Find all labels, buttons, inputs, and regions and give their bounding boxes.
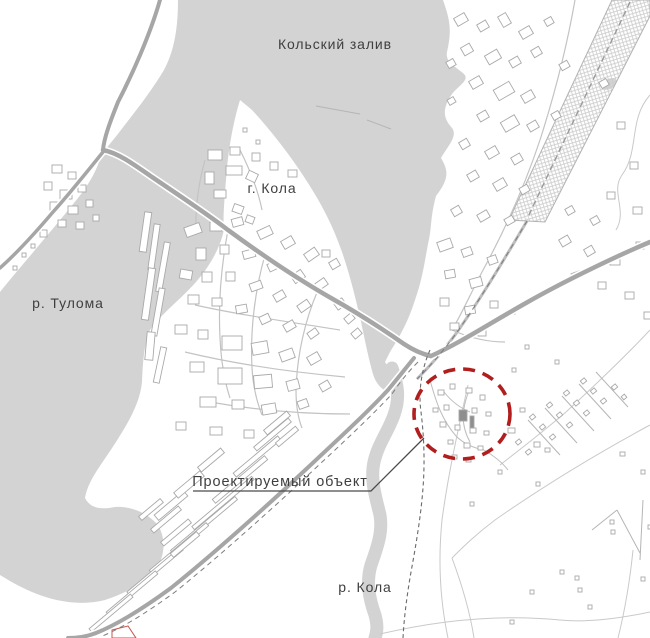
building-footprint	[641, 577, 645, 581]
building-footprint	[531, 46, 543, 57]
building-footprint	[438, 390, 444, 395]
building-footprint	[559, 235, 572, 247]
building-footprint	[487, 255, 498, 266]
street	[252, 255, 265, 415]
building-footprint	[58, 220, 66, 227]
building-footprint	[534, 442, 540, 447]
building-footprint	[510, 620, 514, 624]
railway	[417, 0, 650, 379]
building-footprint	[176, 422, 186, 430]
building-footprint	[544, 16, 554, 26]
building-footprint	[153, 347, 166, 383]
building-footprint	[444, 405, 449, 410]
building-footprint	[478, 446, 483, 450]
building-footprint	[484, 49, 501, 65]
building-footprint	[351, 328, 362, 339]
building-footprint	[621, 394, 627, 400]
building-footprint	[319, 380, 332, 392]
building-footprint	[498, 470, 502, 474]
building-footprint	[273, 290, 287, 302]
building-footprint	[620, 452, 625, 456]
building-footprint	[232, 400, 244, 409]
building-footprint	[454, 13, 469, 27]
building-footprint	[607, 192, 615, 199]
building-footprint	[190, 362, 204, 372]
building-footprint	[598, 282, 606, 289]
building-footprint	[188, 295, 199, 304]
building-footprint	[485, 146, 500, 160]
building-footprint	[259, 313, 271, 324]
building-footprint	[633, 207, 642, 214]
building-footprint	[68, 172, 76, 179]
building-footprint	[286, 379, 300, 392]
building-footprint	[500, 115, 519, 133]
building-footprint	[555, 360, 559, 364]
building-footprint	[76, 222, 84, 229]
trail	[618, 550, 633, 638]
building-footprint	[205, 172, 214, 184]
building-footprint	[560, 570, 564, 574]
building-footprint	[625, 292, 634, 299]
building-footprint	[437, 238, 454, 252]
building-footprint	[279, 348, 296, 362]
building-footprint	[469, 277, 483, 289]
building-footprint	[527, 120, 540, 132]
building-footprint	[288, 170, 297, 177]
building-footprint	[588, 605, 592, 609]
building-footprint	[611, 530, 615, 534]
building-footprint	[68, 206, 78, 214]
site-location-map: Кольский залив р. Тулома г. Кола р. Кола…	[0, 0, 650, 638]
building-footprint	[512, 368, 516, 372]
building-footprint	[521, 90, 536, 104]
building-footprint	[198, 330, 208, 339]
building-footprint	[93, 215, 99, 221]
label-kola-bay: Кольский залив	[278, 36, 392, 52]
building-footprint	[563, 390, 569, 396]
building-footprint	[450, 323, 459, 330]
building-footprint	[22, 253, 26, 257]
building-footprint	[459, 410, 467, 421]
building-footprint	[600, 398, 606, 404]
building-footprint	[520, 408, 525, 412]
building-footprint	[498, 13, 512, 28]
building-footprint	[467, 170, 480, 182]
label-project-object: Проектируемый объект	[192, 474, 368, 490]
building-footprint	[610, 520, 614, 524]
building-footprint	[480, 395, 485, 400]
building-footprint	[444, 269, 455, 279]
building-footprint	[244, 430, 254, 438]
street	[210, 402, 350, 414]
building-footprint	[477, 20, 490, 32]
building-footprint	[461, 247, 473, 258]
boundary-dash	[403, 350, 430, 638]
building-footprint	[440, 298, 449, 306]
building-footprint	[230, 147, 240, 155]
building-footprint	[440, 422, 446, 427]
building-footprint	[175, 325, 187, 334]
building-footprint	[617, 122, 625, 129]
building-footprint	[253, 374, 272, 389]
building-footprint	[630, 162, 638, 169]
building-footprint	[509, 56, 522, 68]
building-footprint	[210, 427, 222, 435]
building-footprint	[245, 215, 255, 224]
building-footprint	[525, 449, 531, 455]
building-footprint	[515, 439, 521, 445]
building-footprint	[477, 110, 490, 122]
building-footprint	[13, 266, 17, 270]
building-footprint	[226, 272, 235, 281]
building-footprint	[470, 502, 474, 506]
building-footprint	[256, 140, 260, 144]
building-footprint	[493, 178, 508, 192]
building-footprint	[464, 443, 470, 448]
building-footprint	[472, 408, 477, 413]
label-kola-river: р. Кола	[338, 579, 391, 595]
building-footprint	[322, 250, 330, 257]
building-footprint	[490, 301, 498, 308]
building-footprint	[556, 412, 562, 418]
building-footprint	[329, 258, 341, 269]
building-footprint	[545, 448, 550, 452]
building-footprint	[235, 304, 247, 314]
building-footprint	[307, 328, 319, 339]
building-footprint	[304, 247, 320, 262]
building-footprint	[493, 81, 515, 100]
building-footprint	[31, 244, 35, 248]
building-footprint	[270, 162, 278, 170]
building-footprint	[644, 312, 650, 319]
building-footprint	[469, 76, 484, 90]
building-footprint	[200, 397, 216, 407]
building-footprint	[252, 153, 260, 161]
location-map-page: Кольский залив р. Тулома г. Кола р. Кола…	[0, 0, 650, 638]
label-kola-town: г. Кола	[247, 180, 296, 196]
building-footprint	[257, 225, 273, 239]
building-footprint	[281, 236, 296, 250]
trail	[380, 612, 650, 634]
building-footprint	[470, 416, 474, 428]
building-footprint	[212, 298, 222, 306]
building-footprint	[218, 368, 242, 384]
building-footprint	[460, 43, 473, 56]
building-footprint	[52, 165, 62, 173]
building-footprint	[565, 205, 575, 215]
building-footprint	[261, 403, 277, 415]
village-street	[640, 500, 643, 560]
river-boundary-line	[403, 350, 430, 638]
building-footprint	[536, 482, 540, 486]
building-footprint	[584, 245, 596, 256]
trail	[566, 330, 650, 412]
building-footprint	[530, 590, 534, 594]
building-footprint	[466, 388, 472, 393]
building-footprint	[575, 576, 579, 580]
building-footprint	[202, 272, 212, 282]
building-footprint	[198, 448, 225, 472]
building-footprint	[578, 588, 582, 592]
building-footprint	[508, 428, 515, 433]
building-footprint	[511, 153, 524, 165]
building-footprint	[208, 150, 222, 160]
building-footprint	[529, 414, 535, 420]
building-footprint	[549, 434, 555, 440]
building-footprint	[433, 408, 438, 412]
building-footprint	[243, 128, 247, 132]
building-footprint	[486, 412, 491, 416]
building-footprint	[220, 245, 229, 254]
building-footprint	[470, 428, 476, 433]
building-footprint	[251, 341, 269, 356]
building-footprint	[44, 182, 52, 190]
trail	[452, 558, 474, 638]
building-footprint	[583, 410, 589, 416]
building-footprint	[297, 299, 311, 312]
building-footprint	[307, 352, 322, 366]
building-footprint	[519, 26, 534, 40]
building-footprint	[233, 436, 281, 477]
building-footprint	[455, 425, 460, 430]
building-footprint	[484, 431, 489, 435]
building-footprint	[641, 470, 645, 474]
building-footprint	[590, 215, 600, 225]
village-street	[617, 510, 640, 553]
building-footprint	[566, 422, 572, 428]
building-footprint	[196, 248, 206, 260]
street	[185, 352, 345, 377]
building-footprint	[179, 269, 192, 280]
building-footprint	[40, 230, 47, 237]
building-footprint	[525, 345, 529, 349]
building-footprint	[249, 280, 263, 292]
building-footprint	[226, 166, 242, 175]
building-footprint	[477, 210, 491, 222]
building-footprint	[546, 402, 552, 408]
building-footprint	[459, 138, 471, 149]
building-footprint	[451, 205, 463, 216]
building-footprint	[580, 378, 586, 384]
label-tuloma-river: р. Тулома	[32, 295, 104, 311]
building-footprint	[86, 200, 93, 207]
building-footprint	[297, 399, 309, 410]
building-footprint	[448, 440, 453, 444]
building-footprint	[232, 204, 244, 215]
building-footprint	[450, 384, 455, 389]
building-footprint	[222, 336, 242, 350]
building-footprint	[214, 190, 226, 198]
building-footprint	[231, 217, 244, 228]
